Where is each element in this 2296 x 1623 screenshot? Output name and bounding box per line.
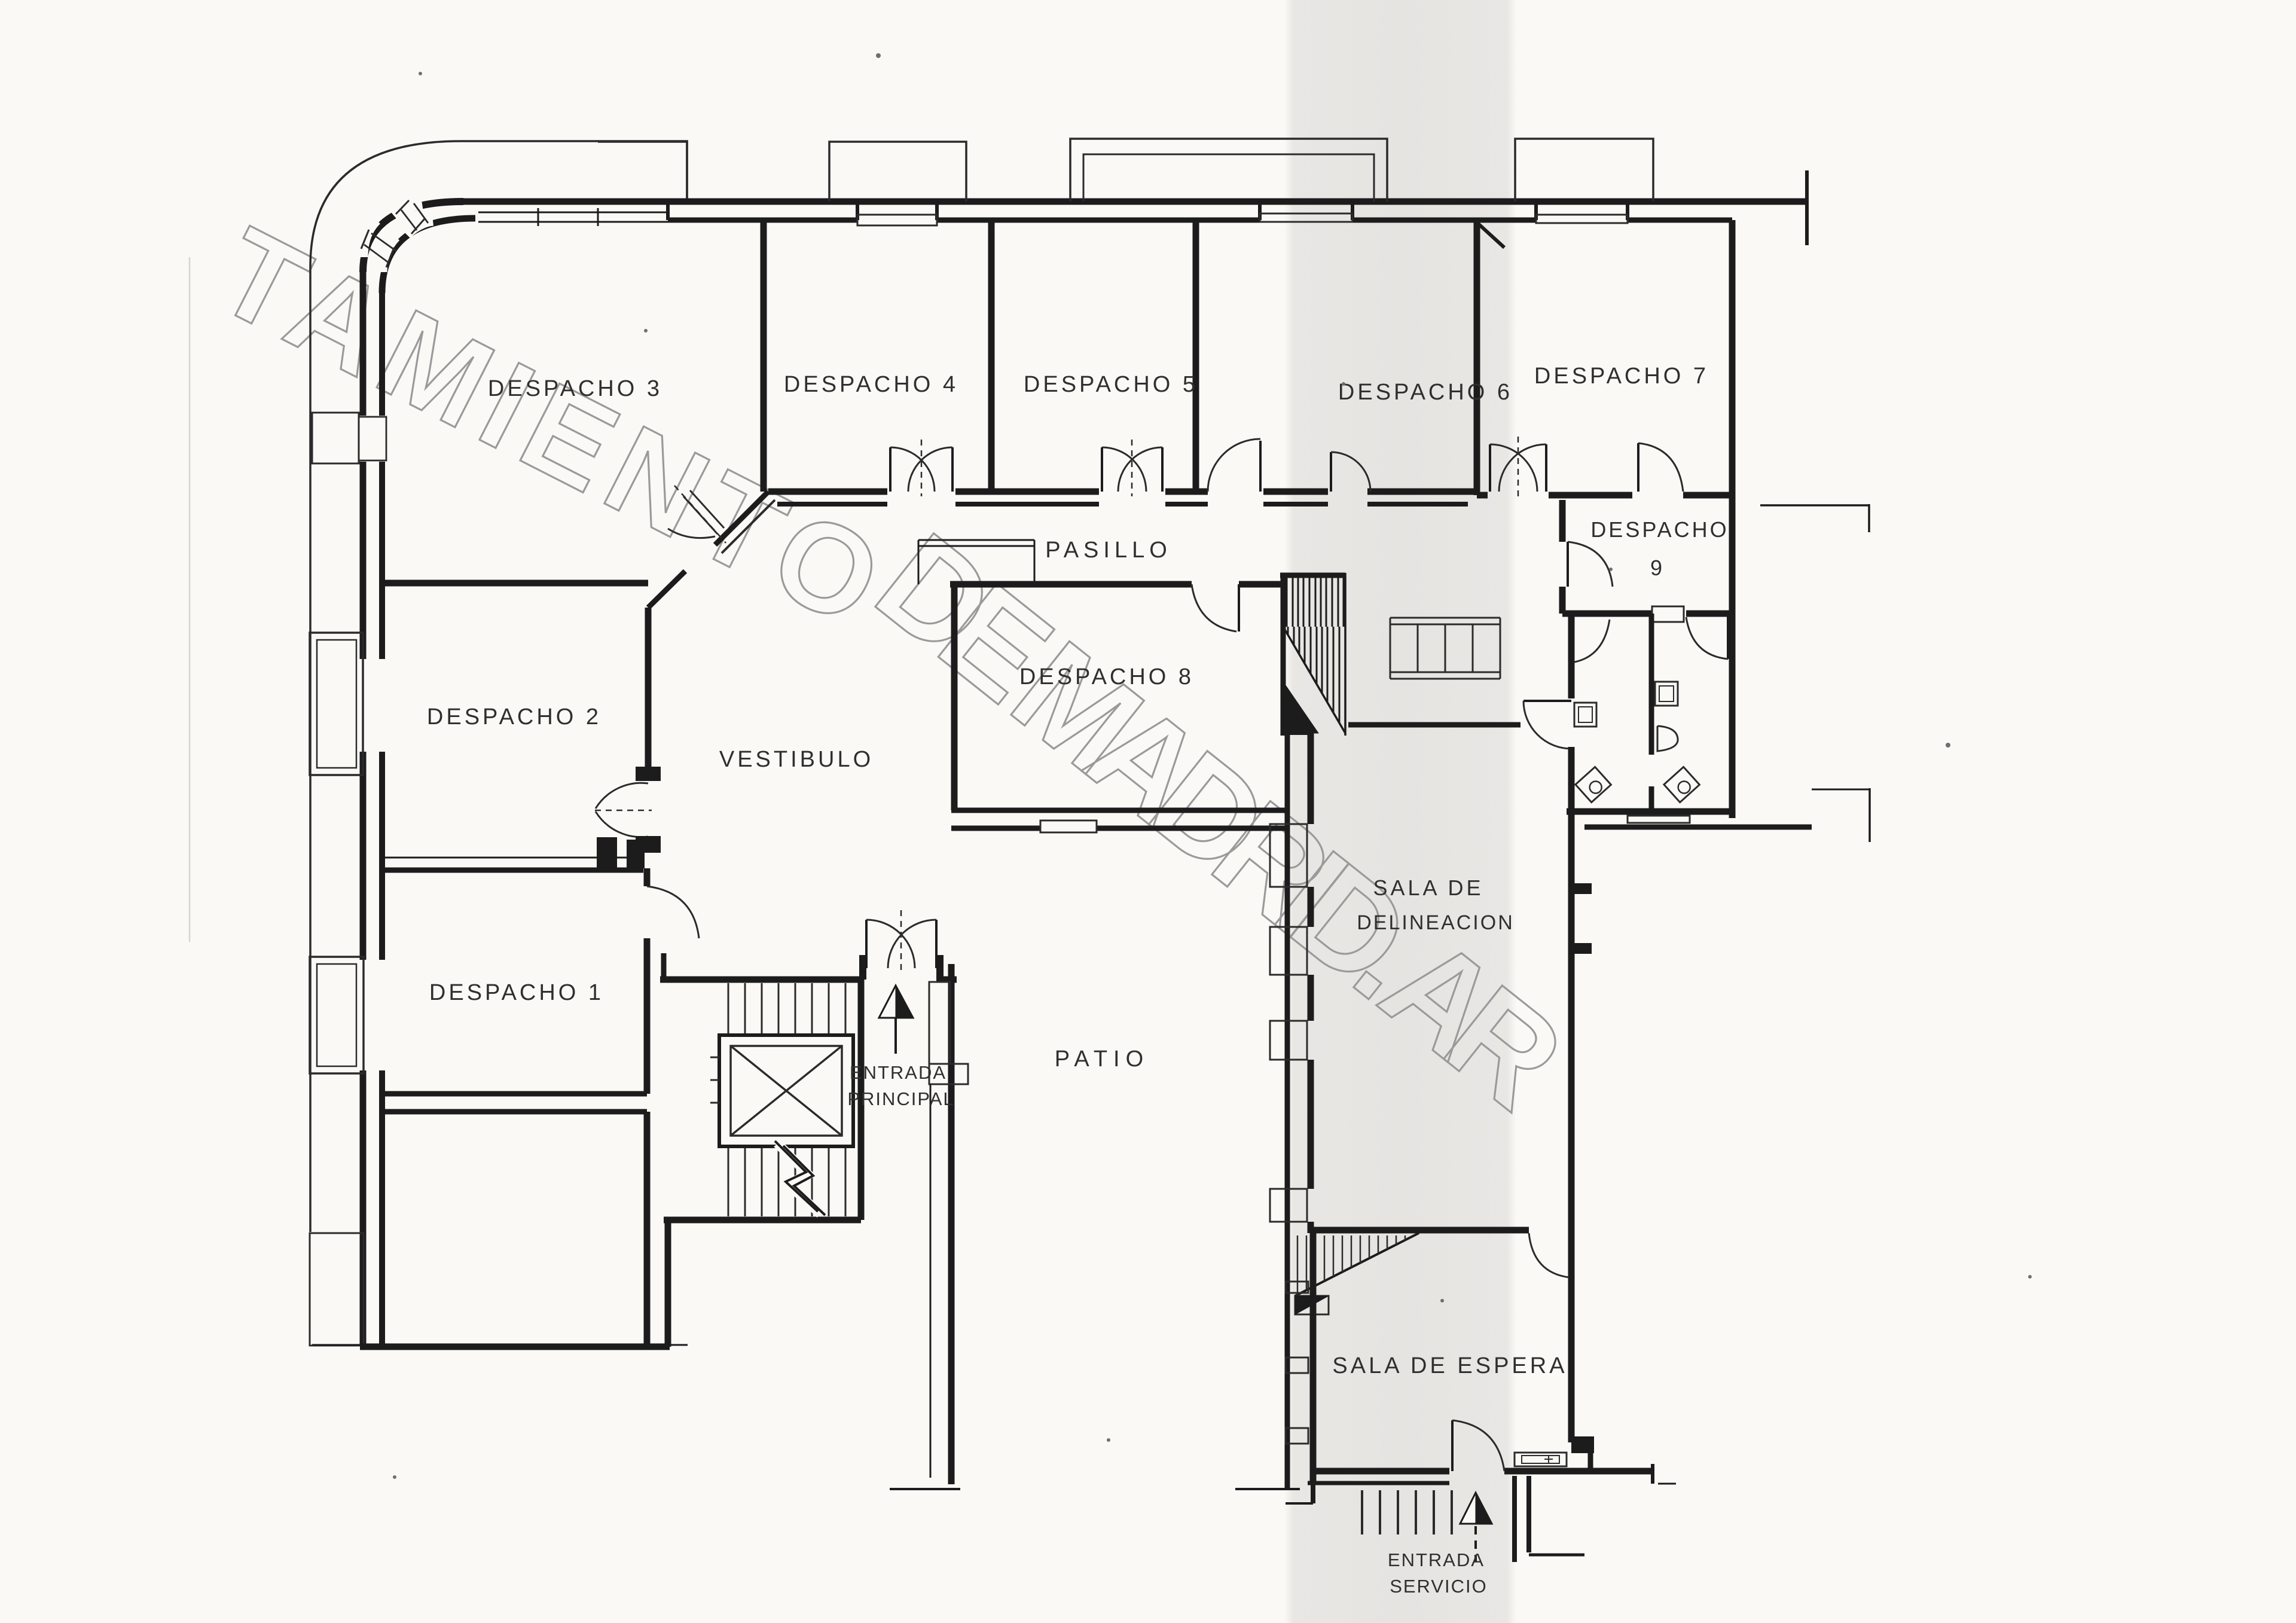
svg-text:9: 9 [1650,556,1665,580]
svg-text:PRINCIPAL: PRINCIPAL [847,1088,954,1109]
svg-text:DESPACHO 2: DESPACHO 2 [427,704,602,730]
svg-text:DESPACHO: DESPACHO [1590,517,1729,542]
svg-text:SALA DE: SALA DE [1373,875,1483,900]
svg-text:SALA DE ESPERA: SALA DE ESPERA [1332,1353,1567,1378]
svg-text:VESTIBULO: VESTIBULO [719,747,874,772]
svg-text:DESPACHO 5: DESPACHO 5 [1024,372,1198,397]
svg-text:ENTRADA: ENTRADA [850,1062,947,1083]
svg-text:DESPACHO 4: DESPACHO 4 [784,372,958,397]
svg-text:DESPACHO 7: DESPACHO 7 [1534,364,1709,389]
svg-text:DELINEACION: DELINEACION [1357,911,1515,934]
svg-text:DESPACHO 3: DESPACHO 3 [488,376,662,401]
svg-text:SERVICIO: SERVICIO [1390,1576,1488,1597]
svg-text:DESPACHO 6: DESPACHO 6 [1338,380,1513,405]
svg-text:DESPACHO 8: DESPACHO 8 [1019,664,1194,690]
svg-text:DESPACHO 1: DESPACHO 1 [429,980,604,1005]
svg-text:PATIO: PATIO [1055,1047,1149,1072]
svg-text:PASILLO: PASILLO [1045,538,1172,563]
svg-text:ENTRADA: ENTRADA [1388,1549,1485,1570]
